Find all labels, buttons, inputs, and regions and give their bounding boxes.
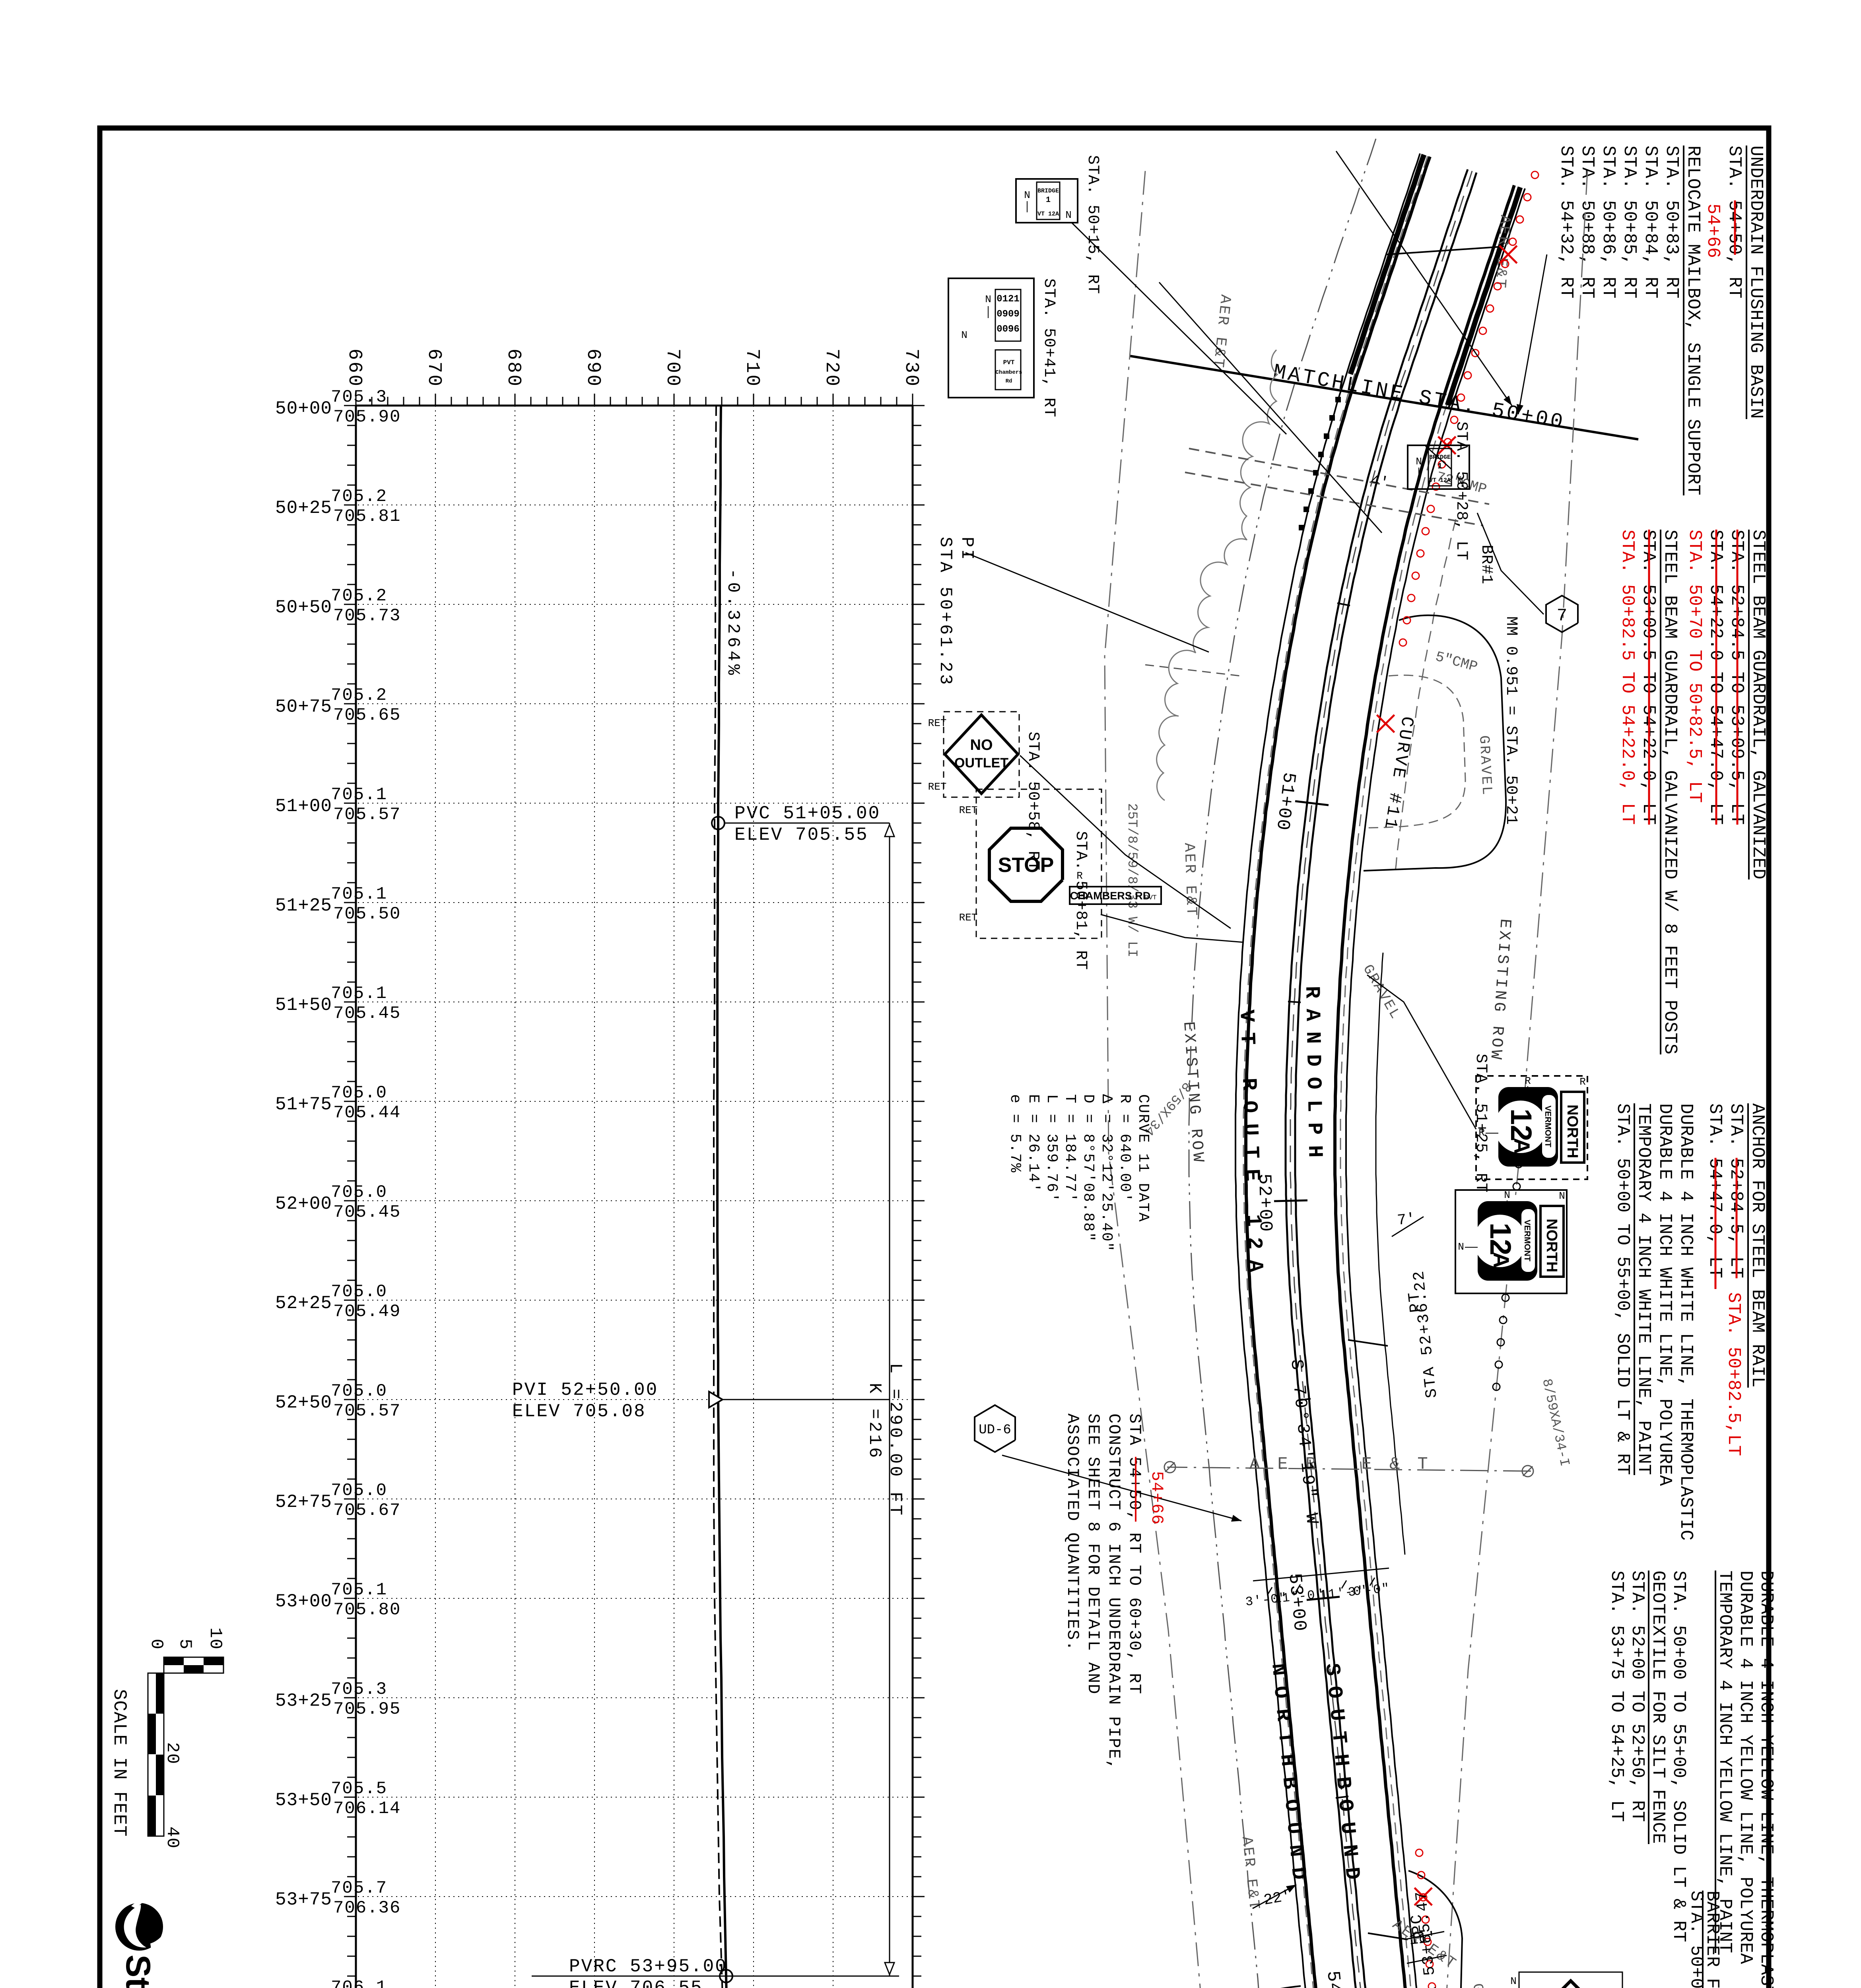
svg-text:Chambers: Chambers — [995, 369, 1022, 376]
svg-text:705.3: 705.3 — [331, 1679, 387, 1699]
svg-text:710: 710 — [741, 349, 763, 388]
svg-text:ELEV 706.55: ELEV 706.55 — [569, 1978, 703, 1988]
svg-text:705.1: 705.1 — [331, 884, 387, 904]
svg-text:STA. 50+84, RT: STA. 50+84, RT — [1640, 146, 1661, 299]
svg-text:25T/8/59/8/33 W/ LI: 25T/8/59/8/33 W/ LI — [1124, 803, 1139, 957]
svg-text:705.45: 705.45 — [333, 1004, 401, 1023]
svg-text:705.0: 705.0 — [331, 1182, 387, 1202]
svg-text:PVT: PVT — [1003, 359, 1015, 366]
svg-text:Δ = 32°12'25.40": Δ = 32°12'25.40" — [1098, 1094, 1115, 1252]
svg-text:10: 10 — [205, 1627, 225, 1650]
svg-text:RET: RET — [959, 912, 978, 924]
svg-text:STEEL BEAM GUARDRAIL, GALVANIZ: STEEL BEAM GUARDRAIL, GALVANIZED — [1748, 530, 1768, 879]
svg-text:AER E&T: AER E&T — [1249, 1454, 1445, 1474]
svg-text:STA. 50+00 TO 50+93, LT: STA. 50+00 TO 50+93, LT — [1686, 1891, 1706, 1988]
svg-text:N: N — [1024, 189, 1030, 201]
svg-text:N: N — [1559, 1190, 1565, 1202]
svg-text:706.36: 706.36 — [333, 1898, 401, 1918]
svg-text:50+50: 50+50 — [275, 597, 332, 618]
svg-text:DURABLE 4 INCH YELLOW LINE, PO: DURABLE 4 INCH YELLOW LINE, POLYUREA — [1735, 1571, 1756, 1964]
svg-text:705.0: 705.0 — [331, 1381, 387, 1401]
svg-text:700: 700 — [662, 349, 683, 388]
svg-text:N: N — [1504, 1189, 1510, 1201]
svg-text:52+75: 52+75 — [275, 1492, 332, 1512]
svg-text:N: N — [1458, 1241, 1464, 1253]
svg-text:PVI 52+50.00: PVI 52+50.00 — [512, 1380, 658, 1400]
svg-text:VERMONT: VERMONT — [1543, 1106, 1552, 1147]
svg-text:PVRC 53+95.00: PVRC 53+95.00 — [569, 1956, 727, 1977]
svg-text:51+50: 51+50 — [275, 995, 332, 1015]
svg-text:SEE SHEET 8 FOR DETAIL AND: SEE SHEET 8 FOR DETAIL AND — [1084, 1413, 1103, 1695]
svg-text:ANCHOR FOR STEEL BEAM RAIL: ANCHOR FOR STEEL BEAM RAIL — [1747, 1103, 1768, 1388]
svg-text:RELOCATE MAILBOX, SINGLE SUPPO: RELOCATE MAILBOX, SINGLE SUPPORT — [1683, 146, 1703, 495]
svg-text:705.80: 705.80 — [333, 1600, 401, 1620]
svg-text:NORTH: NORTH — [1543, 1219, 1560, 1272]
svg-text:690: 690 — [582, 349, 604, 388]
svg-text:MM 0.951 = STA. 50+21: MM 0.951 = STA. 50+21 — [1502, 616, 1520, 825]
svg-text:STA. 50+28, LT: STA. 50+28, LT — [1452, 421, 1470, 561]
svg-text:12: 12 — [1505, 1109, 1538, 1141]
svg-text:1: 1 — [1438, 462, 1442, 471]
svg-text:705.57: 705.57 — [333, 805, 401, 825]
svg-text:705.57: 705.57 — [333, 1401, 401, 1421]
svg-text:705.49: 705.49 — [333, 1302, 401, 1322]
svg-text:A: A — [1509, 1138, 1535, 1154]
svg-text:705.65: 705.65 — [333, 705, 401, 725]
svg-text:0: 0 — [146, 1639, 166, 1650]
svg-text:DURABLE 4 INCH WHITE LINE, POL: DURABLE 4 INCH WHITE LINE, POLYUREA — [1655, 1103, 1675, 1486]
svg-text:CONSTRUCT 6 INCH UNDERDRAIN PI: CONSTRUCT 6 INCH UNDERDRAIN PIPE, — [1104, 1413, 1123, 1771]
svg-text:VT 12A: VT 12A — [1037, 211, 1059, 217]
svg-text:-0.3264%: -0.3264% — [723, 569, 743, 678]
svg-text:ASSOCIATED QUANTITIES.: ASSOCIATED QUANTITIES. — [1063, 1413, 1082, 1652]
svg-text:705.90: 705.90 — [333, 407, 401, 427]
svg-text:GRAVEL: GRAVEL — [1476, 735, 1495, 797]
svg-text:NO: NO — [970, 737, 993, 753]
svg-text:K =216: K =216 — [864, 1383, 884, 1460]
svg-text:N: N — [961, 329, 967, 341]
svg-text:OUTLET: OUTLET — [954, 755, 1008, 771]
svg-text:7': 7' — [1397, 1210, 1416, 1229]
svg-text:705.2: 705.2 — [331, 685, 387, 705]
svg-text:DURABLE 4 INCH WHITE LINE, THE: DURABLE 4 INCH WHITE LINE, THERMOPLASTIC — [1676, 1103, 1696, 1541]
svg-text:705.5: 705.5 — [331, 1779, 387, 1799]
svg-text:705.73: 705.73 — [333, 606, 401, 626]
svg-text:R = 640.00': R = 640.00' — [1116, 1094, 1133, 1203]
svg-text:BRIDGE: BRIDGE — [1037, 188, 1059, 194]
svg-text:ELEV 705.55: ELEV 705.55 — [734, 825, 868, 845]
svg-text:Rd: Rd — [1006, 378, 1012, 384]
svg-text:680: 680 — [503, 349, 524, 388]
svg-text:20: 20 — [162, 1742, 182, 1765]
svg-text:STA. 50+86, RT: STA. 50+86, RT — [1598, 146, 1618, 299]
svg-text:0121: 0121 — [997, 294, 1020, 305]
svg-text:705.67: 705.67 — [333, 1501, 401, 1520]
svg-text:12: 12 — [1484, 1223, 1517, 1255]
svg-text:DURABLE 4 INCH YELLOW LINE, TH: DURABLE 4 INCH YELLOW LINE, THERMOPLASTI… — [1756, 1571, 1776, 1988]
svg-text:N: N — [1510, 1975, 1517, 1987]
svg-text:NORTH: NORTH — [1564, 1105, 1581, 1158]
svg-text:705.44: 705.44 — [333, 1103, 401, 1123]
svg-text:Stantec: Stantec — [119, 1955, 157, 1988]
svg-text:STA. 50+82.5,LT: STA. 50+82.5,LT — [1723, 1292, 1744, 1456]
svg-text:PT: PT — [1406, 1290, 1426, 1313]
svg-text:UD-6: UD-6 — [979, 1423, 1011, 1438]
svg-text:STA. 50+41, RT: STA. 50+41, RT — [1040, 278, 1058, 417]
svg-text:T = 184.77': T = 184.77' — [1061, 1094, 1078, 1203]
svg-text:50+75: 50+75 — [275, 697, 332, 717]
svg-text:AER E&T: AER E&T — [1180, 843, 1200, 918]
svg-text:PI: PI — [957, 537, 977, 562]
svg-text:STA. 50+88, RT: STA. 50+88, RT — [1577, 146, 1597, 299]
svg-text:A: A — [1489, 1252, 1514, 1268]
svg-text:STA. 50+83, RT: STA. 50+83, RT — [1661, 146, 1682, 299]
svg-text:52+50: 52+50 — [275, 1392, 332, 1413]
svg-text:660: 660 — [344, 349, 365, 388]
svg-text:0096: 0096 — [997, 324, 1020, 335]
svg-text:STA. 54+32, RT: STA. 54+32, RT — [1556, 146, 1576, 299]
svg-text:R: R — [1525, 1075, 1531, 1087]
svg-text:51+75: 51+75 — [275, 1094, 332, 1115]
svg-text:STA. 50+82.5 TO 54+22.0, LT: STA. 50+82.5 TO 54+22.0, LT — [1617, 530, 1638, 825]
svg-text:705.50: 705.50 — [333, 904, 401, 924]
svg-text:705.3: 705.3 — [331, 387, 387, 407]
svg-text:STA. 50+81, RT: STA. 50+81, RT — [1072, 831, 1090, 970]
svg-text:STA. 50+15, RT: STA. 50+15, RT — [1084, 155, 1101, 294]
svg-text:e = 5.7%: e = 5.7% — [1006, 1094, 1024, 1173]
svg-text:GEOTEXTILE FOR SILT FENCE: GEOTEXTILE FOR SILT FENCE — [1648, 1571, 1668, 1844]
svg-text:STA. 50+85, RT: STA. 50+85, RT — [1619, 146, 1640, 299]
svg-text:STA 50+61.23: STA 50+61.23 — [935, 537, 955, 687]
svg-text:51+25: 51+25 — [275, 895, 332, 916]
svg-text:RET: RET — [928, 781, 947, 793]
svg-text:STA 54+50, RT TO 60+30, RT: STA 54+50, RT TO 60+30, RT — [1125, 1413, 1144, 1695]
svg-text:730: 730 — [900, 349, 922, 388]
svg-text:670: 670 — [423, 349, 445, 388]
svg-text:50+25: 50+25 — [275, 498, 332, 518]
svg-text:54+66: 54+66 — [1147, 1471, 1166, 1525]
svg-text:50+00: 50+00 — [275, 398, 332, 419]
svg-text:53+00: 53+00 — [275, 1591, 332, 1612]
svg-text:STOP: STOP — [998, 854, 1054, 877]
svg-text:720: 720 — [821, 349, 842, 388]
svg-text:706.1: 706.1 — [331, 1978, 387, 1988]
svg-text:53+75: 53+75 — [275, 1889, 332, 1910]
svg-text:STEEL BEAM GUARDRAIL, GALVANIZ: STEEL BEAM GUARDRAIL, GALVANIZED W/ 8 FE… — [1660, 530, 1680, 1054]
svg-text:N: N — [1416, 456, 1422, 468]
svg-text:STA. 53+75 TO 54+25, LT: STA. 53+75 TO 54+25, LT — [1607, 1571, 1627, 1822]
svg-text:705.81: 705.81 — [333, 507, 401, 526]
svg-text:706.14: 706.14 — [333, 1799, 401, 1819]
svg-text:UNDERDRAIN FLUSHING BASIN: UNDERDRAIN FLUSHING BASIN — [1746, 146, 1766, 419]
svg-text:CURVE 11 DATA: CURVE 11 DATA — [1134, 1094, 1152, 1222]
svg-text:705.45: 705.45 — [333, 1202, 401, 1222]
svg-text:STA. 52+00 TO 52+50, RT: STA. 52+00 TO 52+50, RT — [1627, 1571, 1647, 1822]
svg-text:705.7: 705.7 — [331, 1878, 387, 1898]
svg-text:VERMONT: VERMONT — [1523, 1220, 1532, 1262]
svg-text:N: N — [1065, 209, 1072, 221]
svg-text:705.95: 705.95 — [333, 1699, 401, 1719]
svg-text:705.2: 705.2 — [331, 487, 387, 507]
svg-text:L =290.00 FT: L =290.00 FT — [885, 1363, 905, 1518]
svg-text:R: R — [1579, 1076, 1586, 1088]
svg-text:5: 5 — [175, 1639, 195, 1650]
svg-text:53+25: 53+25 — [275, 1691, 332, 1711]
svg-text:STA. 50+00 TO 55+00, SOLID LT: STA. 50+00 TO 55+00, SOLID LT & RT — [1669, 1571, 1689, 1942]
svg-text:RANDOLPH: RANDOLPH — [1300, 986, 1327, 1168]
svg-text:PVT: PVT — [1144, 894, 1156, 901]
svg-text:7: 7 — [1557, 606, 1567, 626]
svg-text:1: 1 — [1046, 196, 1051, 205]
svg-text:STA. 50+58, RT: STA. 50+58, RT — [1024, 732, 1042, 871]
svg-text:705.0: 705.0 — [331, 1481, 387, 1501]
svg-text:N: N — [985, 293, 991, 305]
svg-text:ELEV 705.08: ELEV 705.08 — [512, 1401, 646, 1422]
svg-text:53+50: 53+50 — [275, 1790, 332, 1811]
svg-text:52+25: 52+25 — [275, 1293, 332, 1314]
svg-text:D = 8°57'08.88": D = 8°57'08.88" — [1080, 1094, 1097, 1242]
svg-text:STA. 51+25, RT: STA. 51+25, RT — [1472, 1054, 1490, 1193]
svg-text:VT 12A: VT 12A — [1429, 477, 1451, 484]
svg-text:51+00: 51+00 — [275, 796, 332, 817]
svg-text:TEMPORARY 4 INCH WHITE LINE, P: TEMPORARY 4 INCH WHITE LINE, PAINT — [1634, 1103, 1654, 1475]
svg-text:STA. 50+00 TO 55+00, SOLID LT: STA. 50+00 TO 55+00, SOLID LT & RT — [1612, 1103, 1633, 1475]
svg-text:705.1: 705.1 — [331, 785, 387, 805]
svg-text:52+00: 52+00 — [275, 1194, 332, 1214]
svg-text:0909: 0909 — [997, 309, 1020, 320]
svg-text:SCALE IN FEET: SCALE IN FEET — [109, 1689, 130, 1837]
svg-text:PVC 51+05.00: PVC 51+05.00 — [734, 803, 880, 824]
svg-text:BRIDGE: BRIDGE — [1429, 454, 1451, 461]
svg-text:STA. 50+70 TO 50+82.5, LT: STA. 50+70 TO 50+82.5, LT — [1684, 530, 1705, 803]
svg-text:4': 4' — [1369, 472, 1390, 492]
svg-text:705.0: 705.0 — [331, 1083, 387, 1103]
svg-text:11': 11' — [1408, 1929, 1438, 1949]
svg-text:RET: RET — [928, 717, 947, 729]
svg-text:705.0: 705.0 — [331, 1282, 387, 1302]
svg-text:L = 359.76': L = 359.76' — [1043, 1094, 1060, 1203]
svg-text:54+66: 54+66 — [1703, 204, 1723, 258]
svg-text:RET: RET — [959, 804, 978, 816]
svg-text:705.1: 705.1 — [331, 984, 387, 1004]
svg-text:40: 40 — [162, 1827, 182, 1849]
svg-text:E = 26.14': E = 26.14' — [1025, 1094, 1042, 1193]
svg-text:705.2: 705.2 — [331, 586, 387, 606]
svg-text:705.1: 705.1 — [331, 1580, 387, 1600]
